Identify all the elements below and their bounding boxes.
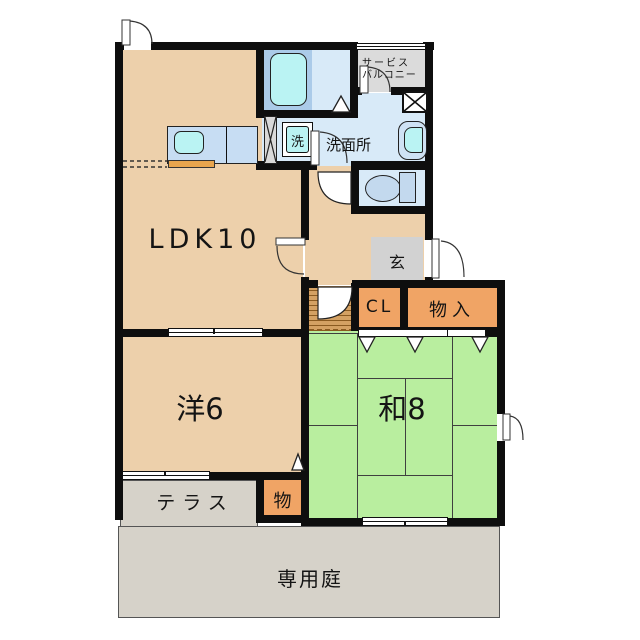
door-gap xyxy=(497,414,506,441)
door-arc xyxy=(510,416,523,440)
pipe-shaft xyxy=(264,116,277,164)
door-arc xyxy=(130,21,152,44)
tatami-mat xyxy=(357,475,453,521)
wall xyxy=(256,42,264,118)
toilet-tank xyxy=(399,172,416,203)
label-closet-mono: 物 xyxy=(262,487,303,513)
vanity-basin xyxy=(404,127,423,153)
wall xyxy=(309,280,318,288)
window-line xyxy=(357,46,425,47)
wall xyxy=(115,42,123,520)
label-garden: 専用庭 xyxy=(235,563,385,592)
wall xyxy=(301,161,309,240)
wall xyxy=(497,440,505,526)
label-japanese-room: 和8 xyxy=(352,386,452,428)
label-western-room: 洋6 xyxy=(150,386,250,428)
fusuma-band-japanese-top xyxy=(358,329,486,337)
toilet-bowl xyxy=(365,175,401,202)
label-closet-monoiri: 物入 xyxy=(406,296,498,322)
counter-edge xyxy=(168,160,215,168)
label-closet-cl: CL xyxy=(357,297,402,317)
counter-divider xyxy=(226,127,227,163)
tatami-mat xyxy=(357,333,453,379)
bathtub xyxy=(270,53,307,106)
wall xyxy=(350,42,358,118)
corridor-wood xyxy=(307,286,353,331)
window-line xyxy=(213,328,215,334)
label-ldk: LDK10 xyxy=(130,224,280,255)
window-line xyxy=(447,329,448,337)
wall xyxy=(151,42,358,50)
wall xyxy=(301,518,362,526)
label-washroom: 洗面所 xyxy=(326,134,406,155)
label-terrace: テラス xyxy=(135,488,255,515)
wall xyxy=(448,518,505,526)
label-washing-machine: 洗 xyxy=(284,131,311,150)
kitchen-sink xyxy=(174,131,204,154)
door-gap xyxy=(424,240,434,277)
tatami-mat xyxy=(452,425,498,521)
meter-box xyxy=(402,91,428,113)
wall xyxy=(351,206,433,214)
wall xyxy=(352,87,362,95)
label-genkan: 玄 xyxy=(371,249,423,273)
entrance-door-arc xyxy=(441,241,464,277)
wall xyxy=(352,280,505,288)
tatami-mat xyxy=(307,425,358,521)
tatami-mat xyxy=(307,333,358,426)
window-line xyxy=(404,521,406,526)
window-line xyxy=(123,475,209,476)
wall xyxy=(263,329,309,337)
door-gap xyxy=(124,42,151,50)
tatami-mat xyxy=(452,333,498,426)
label-balcony-line2: バルコニー xyxy=(362,66,424,81)
wall xyxy=(115,329,168,337)
wall xyxy=(497,284,505,415)
window-line xyxy=(169,332,262,333)
wall xyxy=(351,161,433,170)
window-line xyxy=(164,471,166,476)
floor-plan: LDK10 洋6 和8 洗面所 洗 玄 CL 物入 物 テラス 専用庭 サービス… xyxy=(0,0,640,640)
